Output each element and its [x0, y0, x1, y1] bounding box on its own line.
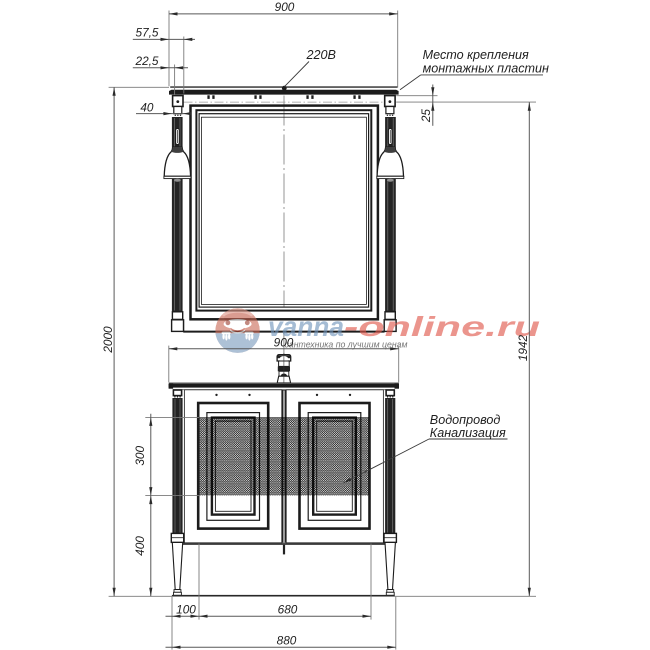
svg-text:1942: 1942: [516, 334, 530, 361]
svg-text:57,5: 57,5: [136, 26, 159, 40]
svg-text:220В: 220В: [306, 48, 336, 62]
svg-text:Канализация: Канализация: [430, 426, 506, 440]
svg-text:Водопровод: Водопровод: [430, 413, 501, 427]
svg-text:900: 900: [275, 0, 295, 14]
svg-text:2000: 2000: [101, 326, 115, 354]
svg-text:400: 400: [133, 536, 147, 556]
svg-text:монтажных пластин: монтажных пластин: [423, 61, 549, 75]
svg-text:40: 40: [140, 100, 154, 114]
svg-text:25: 25: [419, 109, 433, 124]
svg-text:100: 100: [176, 602, 196, 616]
svg-text:vanna-online.ru: vanna-online.ru: [268, 311, 540, 342]
svg-text:300: 300: [133, 446, 147, 466]
svg-text:Место крепления: Место крепления: [423, 48, 529, 62]
svg-text:680: 680: [278, 602, 298, 616]
svg-text:880: 880: [277, 633, 297, 647]
svg-text:22,5: 22,5: [135, 54, 159, 68]
svg-text:900: 900: [274, 336, 294, 350]
